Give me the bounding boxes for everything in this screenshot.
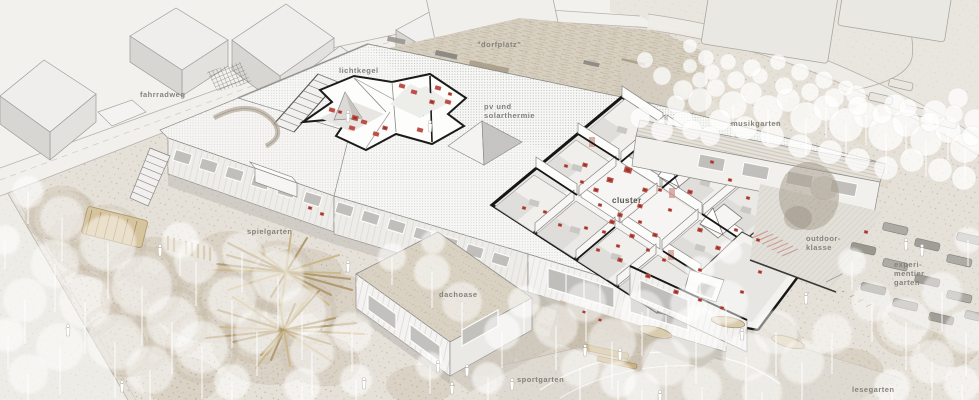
svg-text:garten: garten bbox=[894, 278, 920, 287]
svg-text:"dorfplatz": "dorfplatz" bbox=[477, 40, 521, 49]
svg-text:klasse: klasse bbox=[806, 243, 832, 252]
svg-text:pv und: pv und bbox=[484, 102, 512, 111]
svg-text:fahrradweg: fahrradweg bbox=[140, 90, 185, 99]
svg-text:spielgarten: spielgarten bbox=[247, 227, 293, 236]
svg-text:mentier: mentier bbox=[894, 269, 925, 278]
svg-text:experi-: experi- bbox=[894, 260, 922, 269]
svg-text:sportgarten: sportgarten bbox=[517, 375, 564, 384]
svg-text:solarthermie: solarthermie bbox=[484, 111, 535, 120]
svg-text:cluster: cluster bbox=[612, 196, 642, 205]
svg-text:lichtkegel: lichtkegel bbox=[339, 66, 379, 75]
svg-text:musikgarten: musikgarten bbox=[731, 119, 781, 128]
svg-text:lesegarten: lesegarten bbox=[852, 385, 895, 394]
svg-text:dachoase: dachoase bbox=[439, 290, 478, 299]
svg-text:outdoor-: outdoor- bbox=[806, 234, 841, 243]
